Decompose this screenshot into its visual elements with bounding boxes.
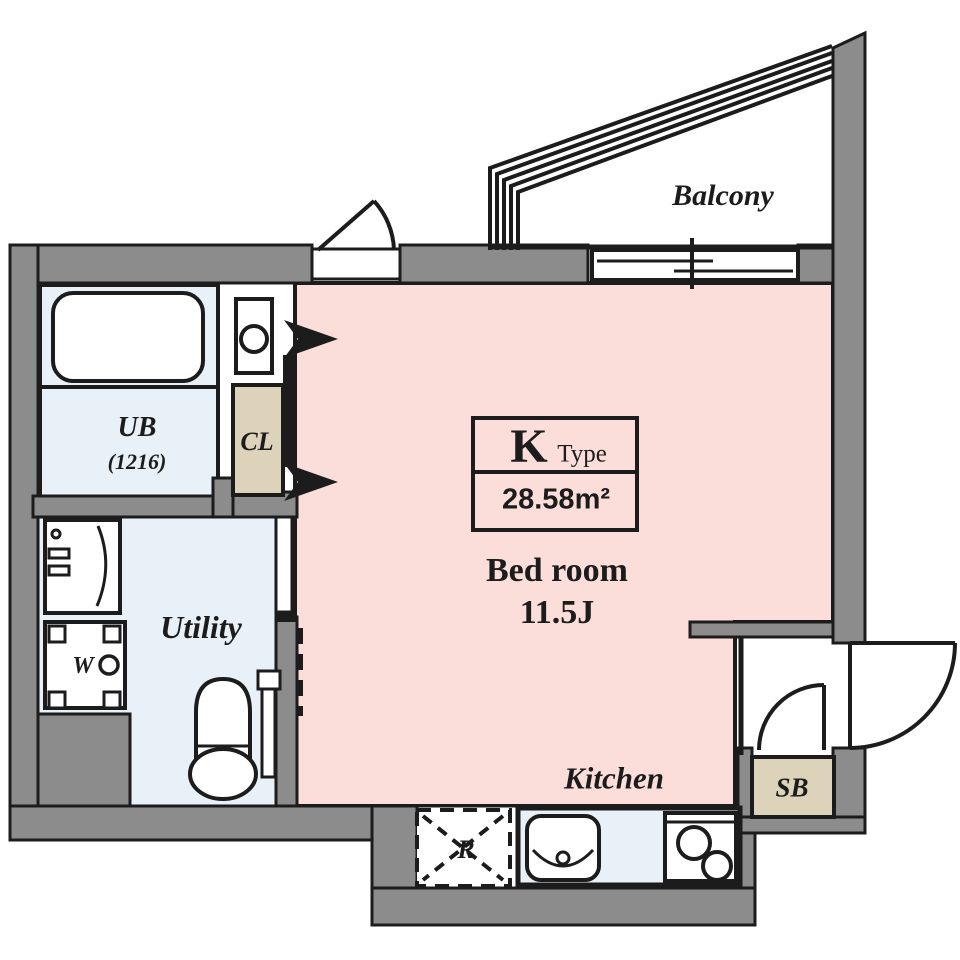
washer-label: W (72, 654, 93, 678)
unit-type-letter: K (510, 423, 547, 471)
wall-top-left (10, 245, 312, 283)
kitchen-sink-icon (527, 816, 599, 880)
wall-entry-stub (690, 622, 833, 637)
closet-label: CL (240, 429, 273, 455)
wall-utility-bedroom (276, 617, 297, 806)
balcony-railing (488, 46, 833, 250)
balcony-label: Balcony (672, 181, 774, 211)
wall-right-upper (833, 33, 865, 643)
toilet-icon (190, 679, 256, 799)
wall-ub-cl-join (213, 478, 233, 517)
top-service-door (312, 201, 400, 279)
entrance-door (850, 643, 955, 748)
unit-type-word: Type (557, 442, 607, 467)
floor-plan: Balcony UB (1216) CL Utility W Bed room … (0, 0, 960, 960)
stove-icon (665, 813, 736, 881)
wall-left (10, 245, 38, 840)
bathtub-icon (53, 293, 203, 381)
unit-area: 28.58m² (502, 486, 610, 515)
unit-bath-size: (1216) (108, 451, 167, 473)
bedroom-size: 11.5J (520, 596, 595, 630)
wall-ub-bottom (33, 496, 215, 517)
door-swing-arc (374, 201, 394, 250)
wall-sb-bottom (738, 817, 865, 833)
wall-top-right (798, 245, 835, 283)
utility-label: Utility (160, 611, 242, 643)
door-swing-arc (850, 643, 955, 748)
floor-plan-drawing (0, 0, 960, 960)
unit-bath-label: UB (118, 414, 157, 442)
water-heater-icon (236, 299, 272, 373)
vanity-icon (45, 520, 120, 613)
refrigerator-label: R (457, 837, 474, 863)
bedroom-label: Bed room (486, 554, 628, 588)
wall-bottom-left (10, 806, 378, 840)
shoe-box-label: SB (775, 775, 808, 802)
kitchen-label: Kitchen (564, 763, 664, 794)
wall-top-mid (400, 245, 588, 283)
shoe-box-door (759, 685, 824, 750)
bedroom-floor (295, 283, 833, 806)
wall-utility-corner (38, 714, 130, 806)
door-swing-arc (759, 685, 824, 750)
wall-kitchen-bottom (372, 888, 755, 925)
door-leaf (318, 201, 374, 250)
